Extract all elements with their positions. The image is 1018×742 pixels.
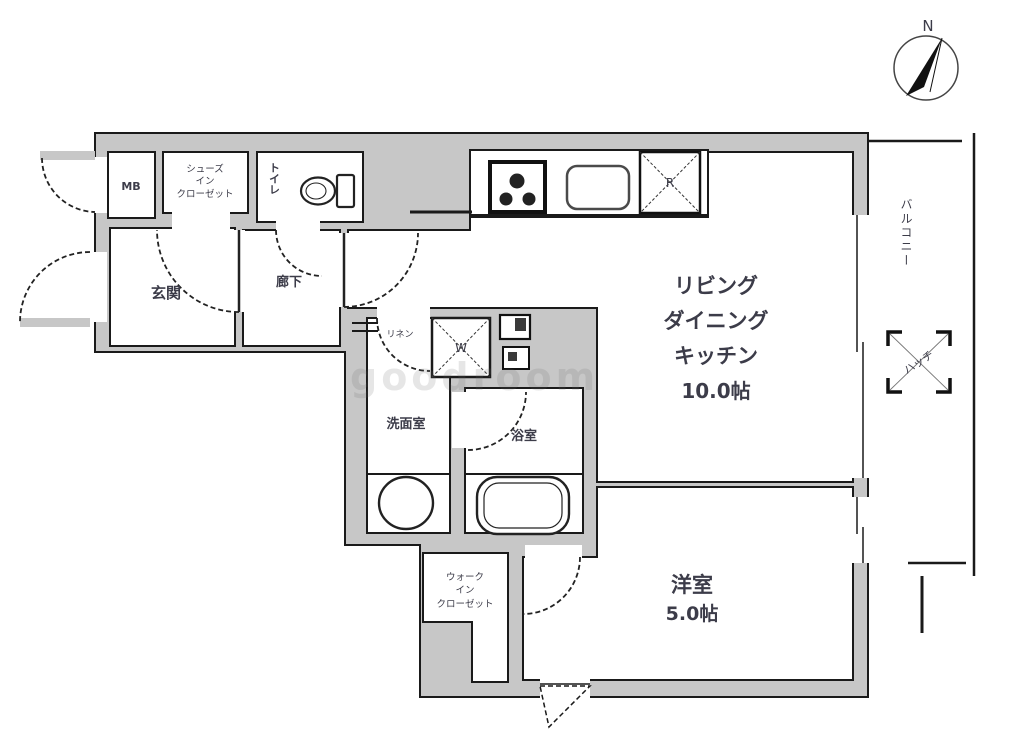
compass-north-label: N [922, 17, 933, 35]
mb-door-leaf [40, 151, 95, 160]
toilet-label: トイレ [268, 162, 281, 195]
kitchen-sink [567, 166, 629, 209]
refrigerator-space: R [640, 152, 700, 213]
ldk-label-line3: キッチン [674, 344, 758, 368]
balcony: ハッチ [868, 133, 974, 633]
compass: N [894, 17, 958, 100]
shoes-closet-label-line1: シューズ [186, 163, 224, 175]
walk-in-closet-label-line2: イン [455, 585, 474, 596]
hallway-label: 廊下 [276, 274, 302, 290]
evacuation-hatch: ハッチ [888, 332, 950, 392]
washbasin [379, 477, 433, 529]
entrance-door-leaf [20, 318, 90, 327]
ldk-label-line1: リビング [674, 274, 758, 298]
bedroom-size: 5.0帖 [666, 602, 719, 625]
compass-needle-icon [906, 38, 942, 96]
floor-plan: R W [0, 0, 1018, 742]
ldk-label-line2: ダイニング [664, 309, 769, 333]
stove [490, 162, 545, 212]
refrigerator-mark: R [666, 176, 674, 190]
walk-in-closet-label-line3: クローゼット [436, 598, 493, 610]
hatch-label: ハッチ [901, 348, 936, 377]
ldk-size: 10.0帖 [681, 379, 750, 403]
bedroom-label: 洋室 [671, 573, 713, 597]
entrance-label: 玄関 [151, 284, 181, 302]
balcony-label: バルコニー [899, 198, 913, 268]
linen-label: リネン [386, 329, 413, 340]
bathtub [477, 477, 569, 534]
entrance-door-swing [20, 252, 90, 322]
watermark: goodroom [350, 355, 599, 399]
shoes-closet-label-line3: クローゼット [176, 188, 233, 200]
washing-machine-mark: W [455, 341, 467, 355]
floor-plan-svg: R W [0, 0, 1018, 742]
bathroom-label: 浴室 [511, 428, 537, 444]
toilet-fixture [301, 175, 354, 207]
meter-box-label: MB [121, 180, 140, 193]
walk-in-closet-label-line1: ウォーク [446, 572, 484, 583]
mb-door-swing [42, 158, 95, 212]
bedroom-bottom-window [540, 684, 590, 727]
washroom-label: 洗面室 [386, 416, 425, 432]
shoes-closet-label-line2: イン [195, 176, 214, 187]
